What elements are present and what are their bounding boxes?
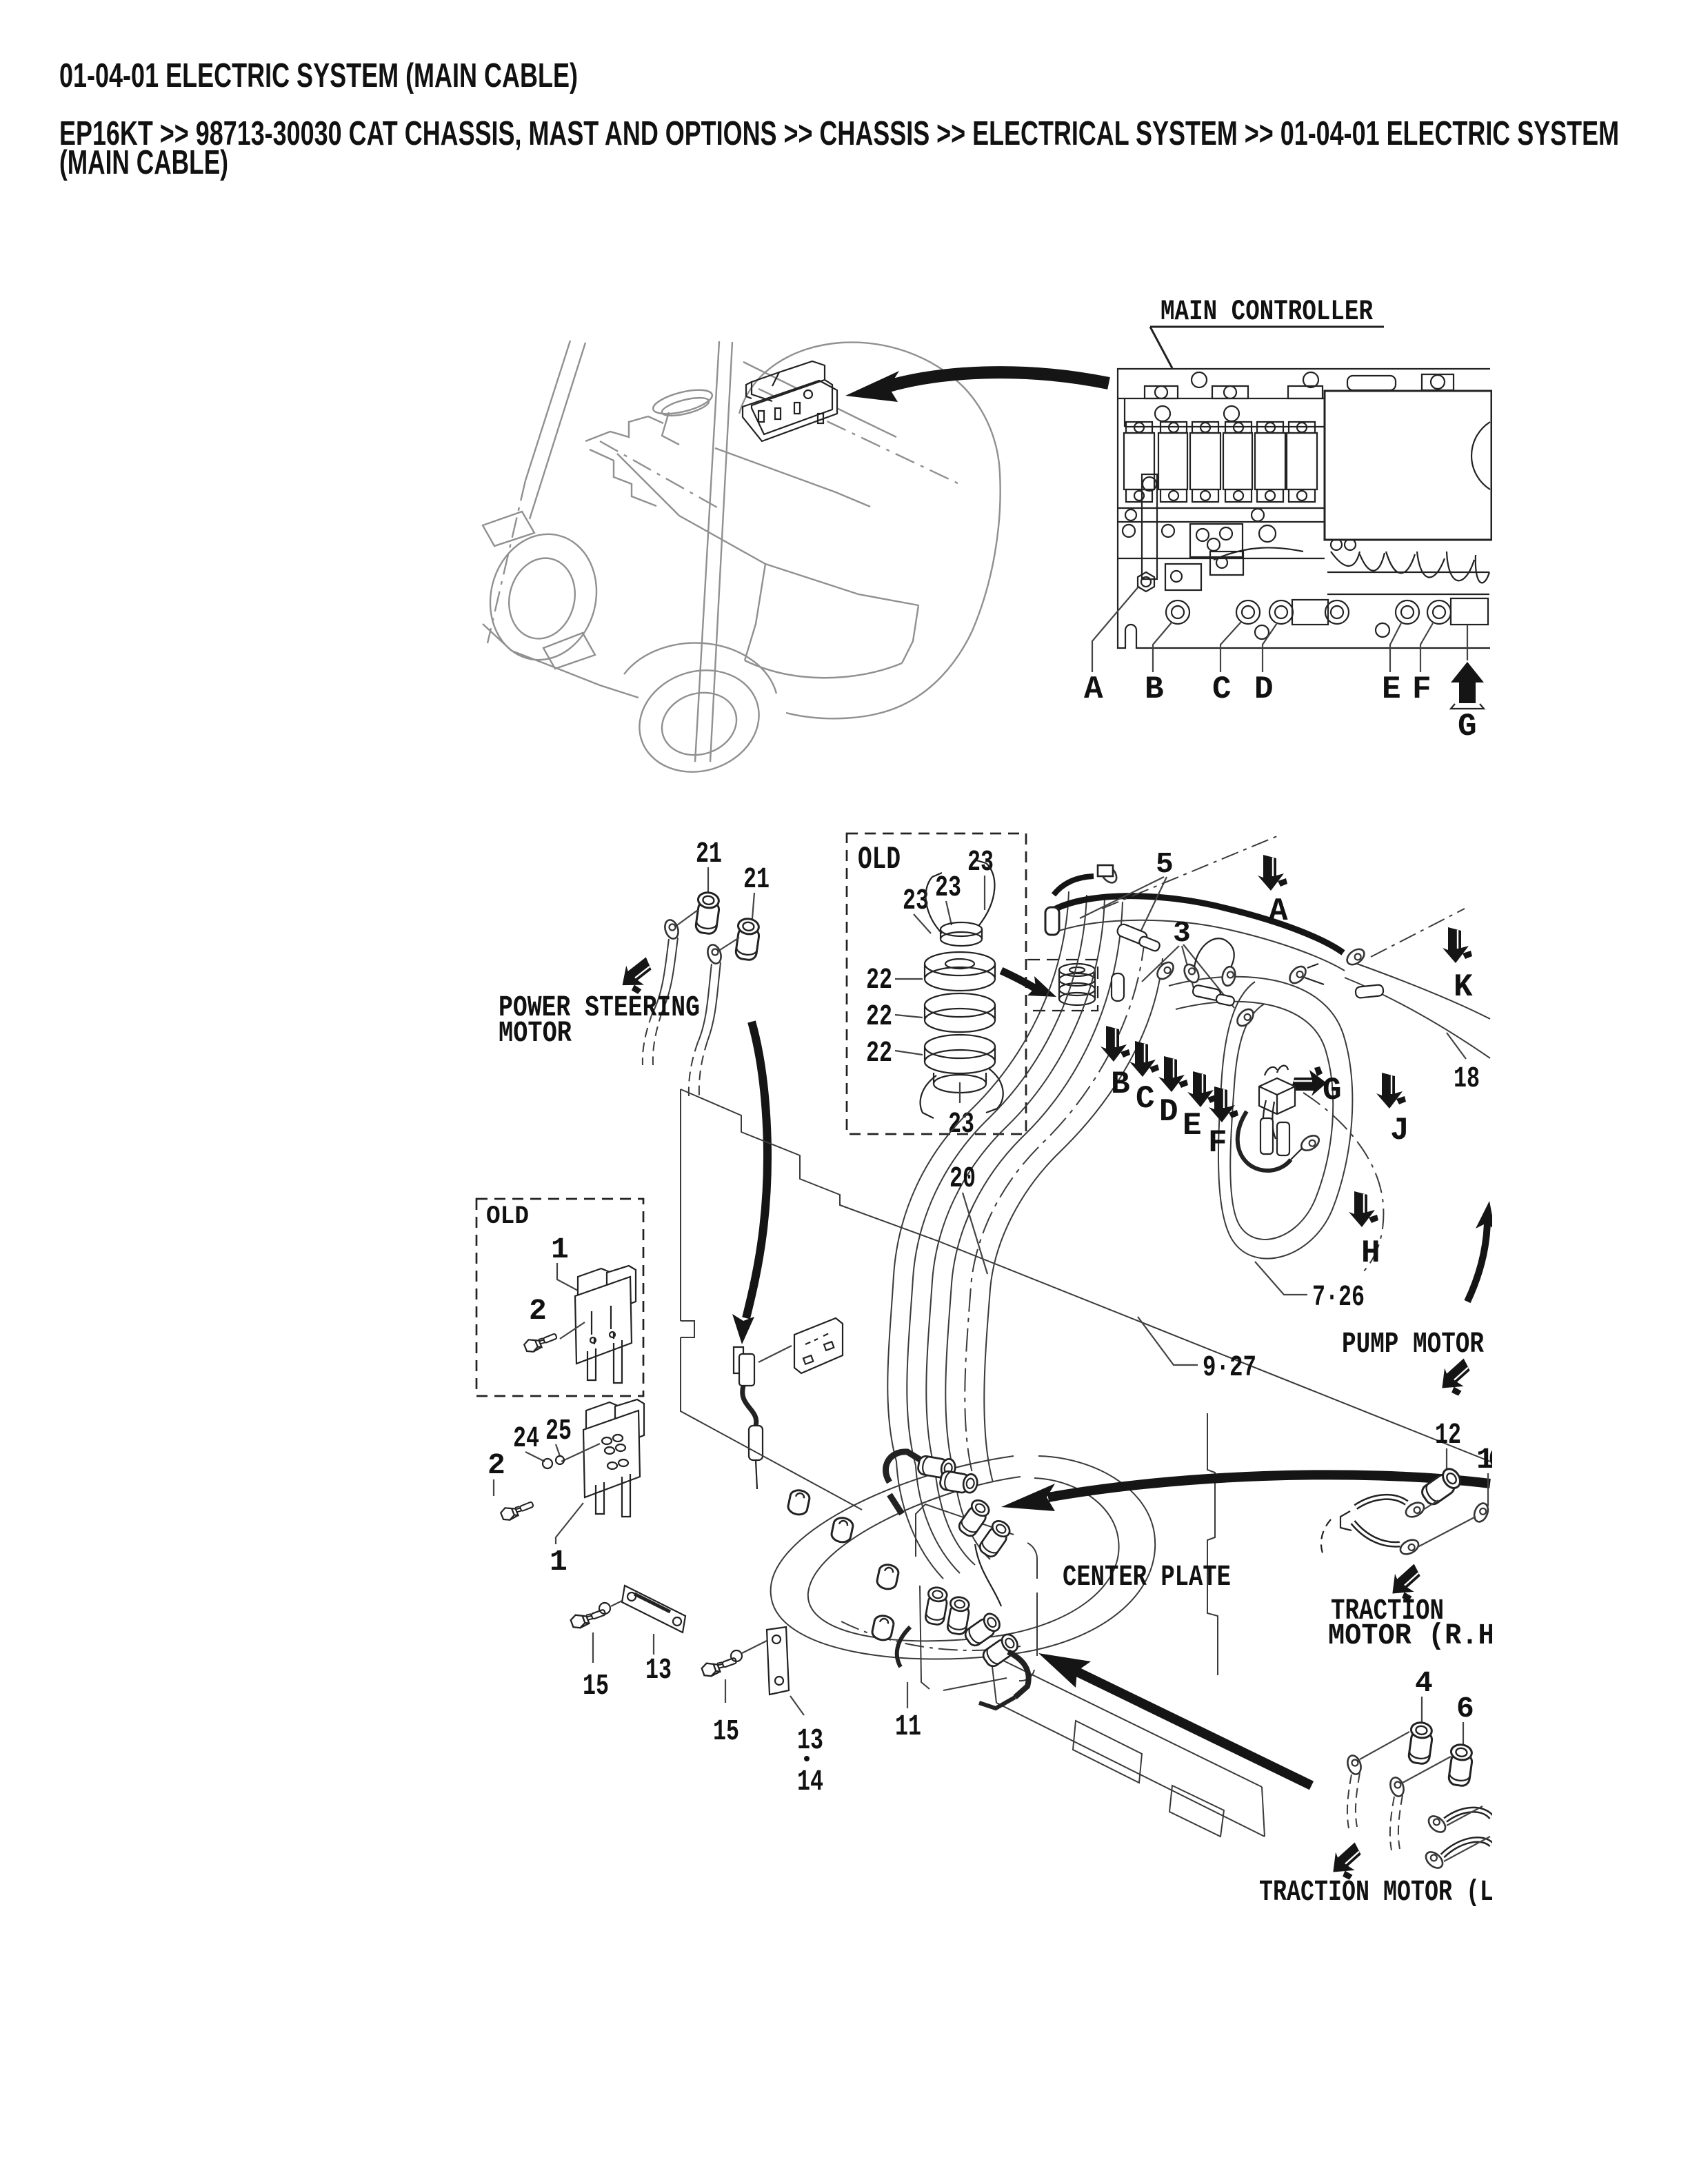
svg-text:12: 12 (1435, 1418, 1461, 1452)
svg-text:A: A (1269, 893, 1288, 929)
svg-text:G: G (1323, 1073, 1342, 1109)
svg-text:J: J (1390, 1113, 1409, 1149)
svg-text:OLD: OLD (486, 1202, 529, 1231)
svg-text:MAIN CONTROLLER: MAIN CONTROLLER (1160, 295, 1374, 328)
svg-text:7·26: 7·26 (1312, 1280, 1365, 1314)
svg-text:2: 2 (488, 1448, 505, 1482)
svg-text:13: 13 (645, 1653, 672, 1687)
svg-text:G: G (1458, 709, 1477, 745)
svg-text:C: C (1212, 671, 1232, 707)
svg-text:(MAIN CABLE): (MAIN CABLE) (59, 144, 228, 181)
svg-text:5: 5 (1156, 847, 1174, 881)
svg-text:K: K (1454, 969, 1473, 1005)
svg-text:20: 20 (949, 1162, 976, 1195)
svg-text:1: 1 (551, 1233, 569, 1266)
svg-text:6: 6 (1456, 1692, 1474, 1726)
svg-text:H: H (1361, 1235, 1380, 1271)
svg-text:9·27: 9·27 (1203, 1351, 1256, 1384)
svg-text:15: 15 (583, 1669, 609, 1703)
svg-text:E: E (1183, 1108, 1202, 1144)
svg-text:22: 22 (866, 1000, 892, 1033)
svg-text:C: C (1136, 1081, 1155, 1117)
svg-text:23: 23 (935, 871, 961, 904)
svg-text:CENTER PLATE: CENTER PLATE (1063, 1560, 1231, 1594)
svg-text:B: B (1145, 671, 1164, 707)
svg-text:22: 22 (866, 1036, 892, 1070)
svg-text:25: 25 (545, 1414, 572, 1448)
svg-text:14: 14 (797, 1765, 823, 1799)
svg-text:3: 3 (1173, 916, 1191, 950)
svg-text:OLD: OLD (858, 842, 901, 878)
svg-text:01-04-01 ELECTRIC SYSTEM (MAIN: 01-04-01 ELECTRIC SYSTEM (MAIN CABLE) (59, 57, 578, 94)
svg-text:1: 1 (550, 1545, 567, 1579)
svg-text:23: 23 (948, 1107, 974, 1141)
svg-text:15: 15 (713, 1715, 739, 1748)
svg-text:EP16KT >> 98713-30030 CAT CHAS: EP16KT >> 98713-30030 CAT CHASSIS, MAST … (59, 115, 1619, 152)
svg-text:A: A (1084, 671, 1103, 707)
svg-text:21: 21 (696, 837, 722, 871)
svg-text:24: 24 (513, 1422, 539, 1455)
svg-text:21: 21 (743, 862, 770, 896)
svg-text:MOTOR: MOTOR (499, 1016, 572, 1050)
svg-text:TRACTION MOTOR (L: TRACTION MOTOR (L (1259, 1875, 1494, 1909)
svg-text:F: F (1412, 671, 1431, 707)
svg-text:4: 4 (1415, 1666, 1433, 1700)
svg-text:13: 13 (797, 1723, 823, 1757)
svg-text:B: B (1111, 1066, 1130, 1102)
svg-text:23: 23 (903, 884, 929, 918)
svg-text:PUMP MOTOR: PUMP MOTOR (1342, 1327, 1484, 1361)
svg-text:18: 18 (1454, 1062, 1480, 1095)
svg-text:22: 22 (866, 963, 892, 997)
svg-text:D: D (1254, 671, 1274, 707)
svg-text:F: F (1208, 1125, 1227, 1161)
svg-text:11: 11 (895, 1710, 921, 1743)
svg-text:2: 2 (529, 1294, 547, 1328)
svg-text:E: E (1382, 671, 1401, 707)
svg-text:D: D (1159, 1094, 1178, 1130)
